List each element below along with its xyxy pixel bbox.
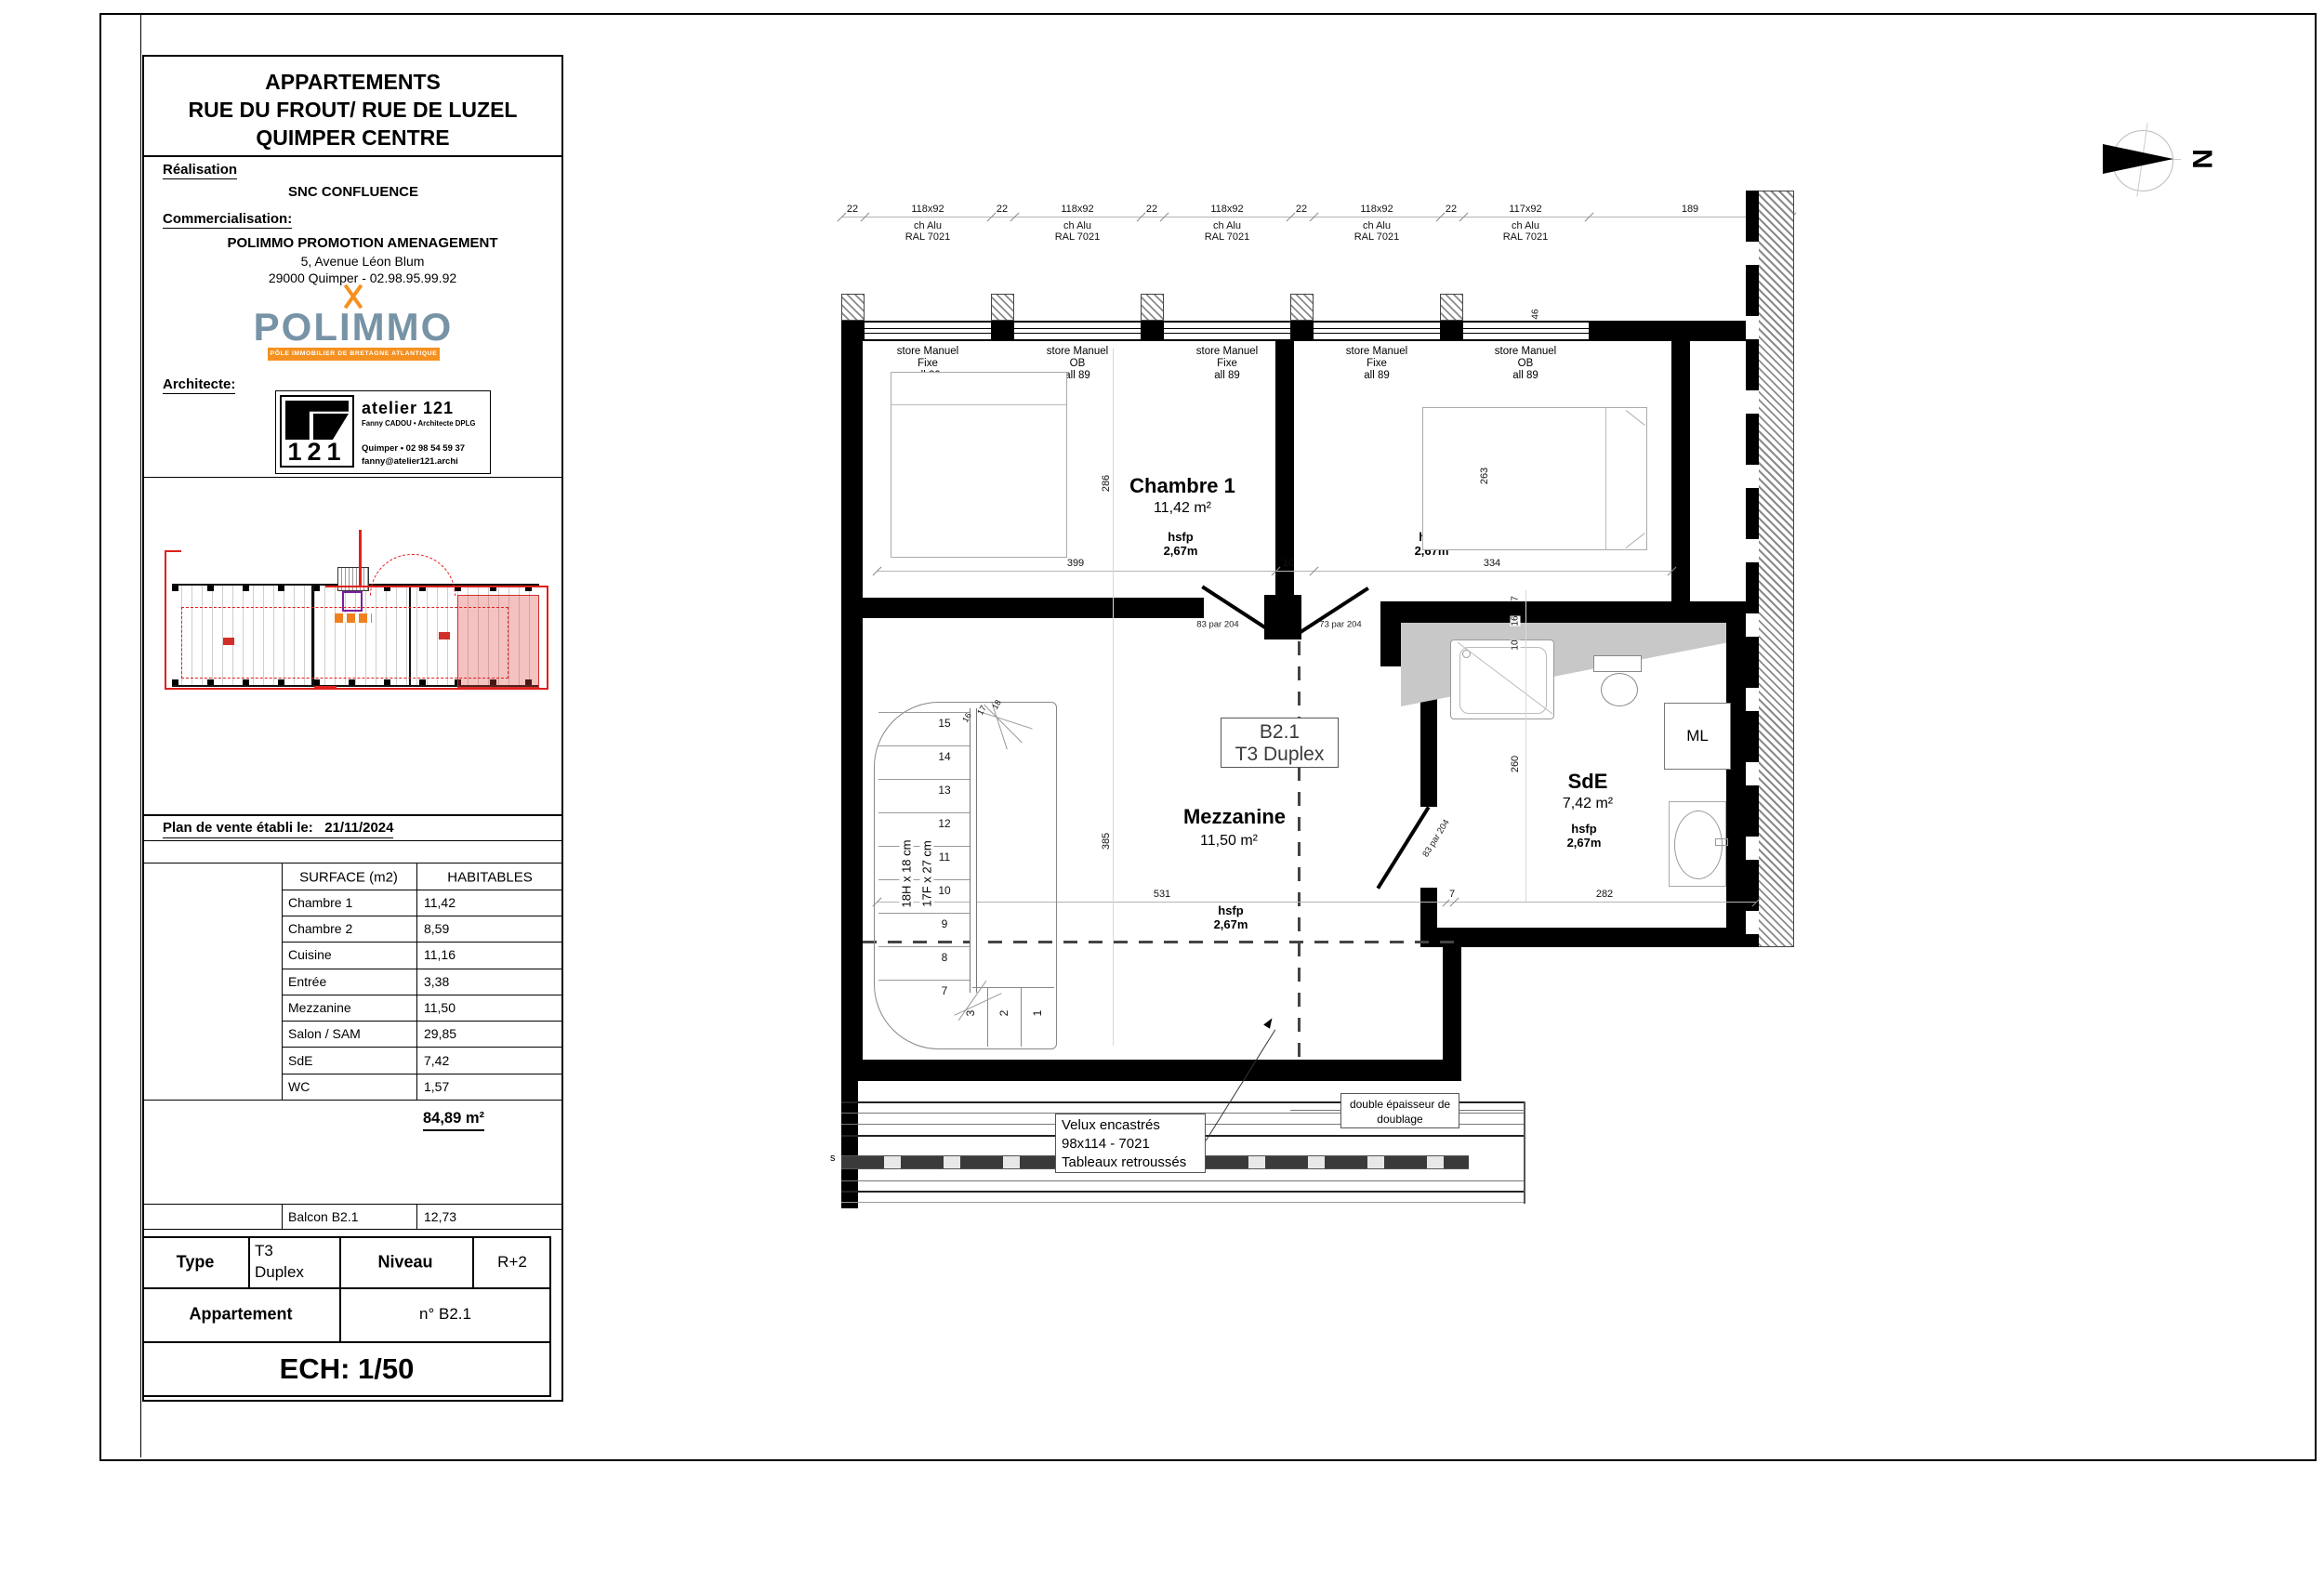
row-line-8 bbox=[142, 1100, 563, 1101]
stair-num: 9 bbox=[942, 917, 948, 930]
room-area-sde: 7,42 m² bbox=[1563, 796, 1613, 812]
niveau-value: R+2 bbox=[497, 1253, 527, 1272]
stair-num: 11 bbox=[939, 850, 950, 864]
table-row: Salon / SAM bbox=[288, 1026, 361, 1041]
store-mode: Fixe bbox=[897, 358, 958, 370]
commercialisation-address: 5, Avenue Léon Blum bbox=[301, 254, 425, 269]
architect-card: 121 atelier 121 Fanny CADOU • Architecte… bbox=[275, 390, 491, 474]
store-height: all 89 bbox=[1346, 370, 1407, 382]
door-size-right: 73 par 204 bbox=[1319, 620, 1361, 630]
window-dim: 117x92 bbox=[1509, 204, 1541, 215]
top-dim-line bbox=[841, 217, 1791, 218]
dim-7: 7 bbox=[1449, 889, 1455, 900]
key-plan-red-tag-1 bbox=[223, 638, 234, 645]
pier-hatch bbox=[1290, 294, 1314, 321]
velux-note-line3: Tableaux retroussés bbox=[1062, 1154, 1205, 1172]
window bbox=[1014, 321, 1141, 341]
door-size-left: 83 par 204 bbox=[1196, 620, 1238, 630]
plan-date-row: Plan de vente établi le: 21/11/2024 bbox=[163, 820, 393, 838]
dim-260: 260 bbox=[1510, 756, 1521, 772]
stair-num: 10 bbox=[938, 884, 950, 897]
window-frame: ch Alu bbox=[1063, 220, 1091, 231]
table-cell-value: 3,38 bbox=[424, 974, 449, 989]
store-height: all 89 bbox=[1495, 370, 1556, 382]
realisation-label: Réalisation bbox=[163, 162, 237, 179]
north-arrow: N bbox=[2092, 116, 2259, 204]
pier-hatch bbox=[991, 294, 1014, 321]
window-ral: RAL 7021 bbox=[1354, 231, 1400, 243]
insulation-inner-studs bbox=[1746, 191, 1759, 947]
polimmo-logo: POLIMMO PÔLE IMMOBILIER DE BRETAGNE ATLA… bbox=[260, 284, 446, 363]
table-row: Mezzanine bbox=[288, 1000, 351, 1015]
project-title-line3: QUIMPER CENTRE bbox=[142, 124, 563, 152]
key-plan-red-outline-top-stub bbox=[165, 550, 181, 552]
window bbox=[1314, 321, 1440, 341]
velux-note-line2: 98x114 - 7021 bbox=[1062, 1135, 1205, 1154]
unit-type: T3 Duplex bbox=[1221, 744, 1338, 765]
table-cell-value: 11,50 bbox=[424, 1000, 456, 1015]
unit-number: B2.1 bbox=[1221, 720, 1338, 744]
window-ral: RAL 7021 bbox=[1503, 231, 1549, 243]
table-row: Cuisine bbox=[288, 947, 332, 962]
doublage-note-line1: double épaisseur de bbox=[1341, 1097, 1459, 1112]
window-dim: 118x92 bbox=[911, 204, 944, 215]
dim-10: 10 bbox=[1283, 558, 1294, 569]
type-label: Type bbox=[177, 1253, 215, 1272]
niveau-label: Niveau bbox=[377, 1253, 432, 1272]
balcon-vline-2 bbox=[416, 1204, 417, 1229]
room-area-chambre1: 11,42 m² bbox=[1154, 500, 1211, 517]
table-cell-value: 7,42 bbox=[424, 1053, 449, 1068]
balcon-label: Balcon B2.1 bbox=[288, 1209, 359, 1224]
store-label: store ManuelFixeall 89 bbox=[1196, 346, 1258, 382]
table-row: WC bbox=[288, 1079, 310, 1094]
washbasin-tap bbox=[1715, 838, 1728, 846]
table-row: Chambre 1 bbox=[288, 895, 352, 910]
wall-segment bbox=[1141, 321, 1164, 341]
store-mode: OB bbox=[1495, 358, 1556, 370]
row-line-1 bbox=[282, 916, 563, 916]
north-letter: N bbox=[2185, 149, 2217, 169]
architect-name: Fanny CADOU • Architecte DPLG bbox=[362, 419, 475, 428]
dim-282: 282 bbox=[1596, 889, 1613, 900]
mezzanine-dashed-line-vertical bbox=[1298, 641, 1301, 1058]
id-hline-2 bbox=[142, 1341, 551, 1343]
plan-date-label: Plan de vente établi le: bbox=[163, 820, 313, 836]
stair-num-low: 2 bbox=[997, 1010, 1010, 1017]
pier-dim: 22 bbox=[997, 204, 1008, 215]
bed-chambre1 bbox=[891, 372, 1067, 558]
stair-tread-label: 17F x 27 cm bbox=[920, 840, 934, 907]
wall-chambre2-right bbox=[1671, 341, 1690, 601]
sheet-inner-left-line bbox=[140, 13, 141, 1457]
hsfp-label: hsfp bbox=[1567, 822, 1602, 836]
dim-v10: 10 bbox=[1511, 639, 1521, 650]
witness-v-1641 bbox=[1525, 590, 1526, 902]
commercialisation-name: POLIMMO PROMOTION AMENAGEMENT bbox=[227, 235, 497, 251]
hsfp-value: 2,67m bbox=[1214, 917, 1248, 931]
id-hline-1 bbox=[142, 1287, 551, 1289]
wall-left bbox=[841, 321, 863, 1081]
appartement-value: n° B2.1 bbox=[419, 1305, 471, 1324]
unit-tag-box: B2.1 T3 Duplex bbox=[1221, 718, 1339, 768]
store-type: store Manuel bbox=[1047, 346, 1108, 358]
row-line-6 bbox=[282, 1047, 563, 1048]
doublage-leader-right bbox=[1459, 1110, 1525, 1111]
store-type: store Manuel bbox=[1196, 346, 1258, 358]
wall-connector bbox=[1443, 947, 1461, 1081]
hsfp-chambre1: hsfp2,67m bbox=[1164, 530, 1198, 558]
hsfp-mezzanine: hsfp2,67m bbox=[1214, 903, 1248, 931]
row-line-5 bbox=[282, 1021, 563, 1022]
dim-399: 399 bbox=[1067, 558, 1084, 569]
habitables-col-header: HABITABLES bbox=[447, 870, 532, 886]
room-label-mezzanine: Mezzanine bbox=[1183, 805, 1286, 829]
project-title-box: APPARTEMENTS RUE DU FROUT/ RUE DE LUZEL … bbox=[142, 55, 563, 157]
key-plan-red-riser-line bbox=[359, 530, 362, 587]
pier-hatch bbox=[1141, 294, 1164, 321]
staircase: 15 14 13 12 11 10 9 8 7 3 2 1 16 17 18 bbox=[863, 697, 1063, 1055]
table-row: SdE bbox=[288, 1053, 312, 1068]
window-ral: RAL 7021 bbox=[1205, 231, 1250, 243]
plan-date-value: 21/11/2024 bbox=[324, 820, 393, 836]
store-mode: Fixe bbox=[1196, 358, 1258, 370]
row-line-0 bbox=[282, 890, 563, 890]
id-vline-2 bbox=[339, 1236, 341, 1341]
window-ral: RAL 7021 bbox=[1055, 231, 1101, 243]
table-vline-1 bbox=[282, 863, 283, 1100]
table-line-h3 bbox=[142, 863, 563, 864]
pier-hatch bbox=[841, 294, 865, 321]
doublage-leader-left bbox=[1290, 1110, 1340, 1111]
wall-segment bbox=[991, 321, 1014, 341]
id-vline-1 bbox=[248, 1236, 250, 1289]
row-line-2 bbox=[282, 942, 563, 943]
dim-v16: 16 bbox=[1511, 615, 1521, 626]
key-plan-red-tag-2 bbox=[439, 632, 450, 639]
row-line-4 bbox=[282, 995, 563, 995]
balcon-value: 12,73 bbox=[424, 1209, 456, 1224]
pier-dim: 22 bbox=[1146, 204, 1157, 215]
window-ral: RAL 7021 bbox=[905, 231, 951, 243]
dim-263: 263 bbox=[1479, 468, 1490, 484]
commercialisation-label: Commercialisation: bbox=[163, 211, 292, 229]
toilet bbox=[1593, 655, 1642, 672]
washing-machine-label: ML bbox=[1686, 727, 1709, 745]
window-frame: ch Alu bbox=[914, 220, 942, 231]
polimmo-tagline: PÔLE IMMOBILIER DE BRETAGNE ATLANTIQUE bbox=[271, 350, 438, 357]
store-type: store Manuel bbox=[1495, 346, 1556, 358]
balcon-line-top bbox=[142, 1204, 563, 1205]
table-row: Entrée bbox=[288, 974, 326, 989]
commercialisation-city: 29000 Quimper - 02.98.95.99.92 bbox=[269, 270, 456, 285]
doublage-note-line2: doublage bbox=[1341, 1112, 1459, 1127]
scale-label: ECH: 1/50 bbox=[280, 1352, 415, 1386]
stair-rail bbox=[970, 708, 977, 993]
atelier121-logo-text: 121 bbox=[287, 438, 346, 467]
doublage-dashed-band bbox=[1206, 1155, 1469, 1169]
table-line-h1 bbox=[142, 814, 563, 816]
key-plan-red-outline-left bbox=[165, 550, 166, 690]
stair-riser-label: 18H x 18 cm bbox=[900, 840, 914, 908]
architect-phone: Quimper • 02 98 54 59 37 bbox=[362, 443, 465, 454]
polimmo-wordmark: POLIMMO bbox=[254, 305, 454, 349]
window-frame: ch Alu bbox=[1363, 220, 1391, 231]
doublage-dashed-band bbox=[841, 1155, 1055, 1169]
key-plan-red-caption bbox=[314, 686, 337, 689]
dim-385: 385 bbox=[1101, 833, 1112, 850]
key-plan-red-outline-bottom bbox=[165, 688, 548, 690]
hsfp-value: 2,67m bbox=[1164, 544, 1198, 558]
surface-total: 84,89 m² bbox=[423, 1110, 484, 1131]
hsfp-label: hsfp bbox=[1214, 903, 1248, 917]
window-dim: 118x92 bbox=[1210, 204, 1243, 215]
wall-segment bbox=[1290, 321, 1314, 341]
velux-note-line1: Velux encastrés bbox=[1062, 1116, 1205, 1135]
stair-step-divider bbox=[987, 987, 988, 1047]
table-cell-value: 8,59 bbox=[424, 921, 449, 936]
surface-col-header: SURFACE (m2) bbox=[299, 870, 398, 886]
store-type: store Manuel bbox=[1346, 346, 1407, 358]
shower bbox=[1450, 639, 1554, 719]
wall-sde-right bbox=[1726, 601, 1746, 947]
wall-segment bbox=[1440, 321, 1463, 341]
pier-hatch bbox=[1440, 294, 1463, 321]
row-line-7 bbox=[282, 1074, 563, 1074]
balcon-vline-1 bbox=[282, 1204, 283, 1229]
table-row: Chambre 2 bbox=[288, 921, 352, 936]
type-value-line2: Duplex bbox=[255, 1263, 304, 1282]
dim-334: 334 bbox=[1484, 558, 1500, 569]
sheet: APPARTEMENTS RUE DU FROUT/ RUE DE LUZEL … bbox=[0, 0, 2324, 1582]
room-label-chambre1: Chambre 1 bbox=[1129, 474, 1235, 498]
key-plan-red-outline-right bbox=[547, 586, 548, 690]
architect-studio: atelier 121 bbox=[362, 399, 454, 418]
wall-sde-top bbox=[1380, 601, 1746, 623]
hsfp-label: hsfp bbox=[1164, 530, 1198, 544]
table-cell-value: 1,57 bbox=[424, 1079, 449, 1094]
end-dim: 189 bbox=[1682, 204, 1698, 215]
stair-landing-line bbox=[972, 987, 1054, 988]
window-dim: 118x92 bbox=[1360, 204, 1393, 215]
window-frame: ch Alu bbox=[1512, 220, 1539, 231]
hsfp-sde: hsfp2,67m bbox=[1567, 822, 1602, 850]
stair-num: 13 bbox=[938, 784, 950, 797]
stair-num: 8 bbox=[942, 951, 948, 964]
table-cell-value: 29,85 bbox=[424, 1026, 456, 1041]
stair-num: 12 bbox=[938, 817, 950, 830]
project-title-line2: RUE DU FROUT/ RUE DE LUZEL bbox=[142, 96, 563, 124]
doublage-note-box: double épaisseur de doublage bbox=[1340, 1093, 1459, 1128]
store-type: store Manuel bbox=[897, 346, 958, 358]
key-plan-red-dashed-arc bbox=[370, 554, 456, 596]
key-plan-stair-core bbox=[337, 567, 369, 591]
dim-v7: 7 bbox=[1511, 596, 1521, 601]
window bbox=[865, 321, 991, 341]
stair-step-divider bbox=[1021, 987, 1022, 1047]
stair-num: 7 bbox=[942, 984, 948, 997]
store-label: store ManuelFixeall 89 bbox=[1346, 346, 1407, 382]
wall-return-dim: 46 bbox=[1531, 309, 1541, 319]
polimmo-tagline-banner: PÔLE IMMOBILIER DE BRETAGNE ATLANTIQUE bbox=[268, 348, 440, 361]
atelier121-logo: 121 bbox=[280, 395, 354, 468]
window bbox=[1463, 321, 1589, 341]
architect-email: fanny@atelier121.archi bbox=[362, 456, 458, 467]
table-line-h2 bbox=[142, 840, 563, 841]
room-area-mezzanine: 11,50 m² bbox=[1200, 833, 1258, 850]
table-cell-value: 11,16 bbox=[424, 947, 456, 962]
toilet-bowl bbox=[1601, 673, 1638, 706]
wall-mezz-bottom bbox=[841, 1060, 1461, 1081]
store-mode: OB bbox=[1047, 358, 1108, 370]
stair-num: 14 bbox=[938, 750, 950, 763]
project-title-line1: APPARTEMENTS bbox=[142, 68, 563, 96]
section-letter: s bbox=[830, 1153, 836, 1164]
pier-dim: 22 bbox=[1446, 204, 1457, 215]
hsfp-value: 2,67m bbox=[1567, 836, 1602, 850]
appartement-label: Appartement bbox=[189, 1305, 292, 1325]
balcon-line-bottom bbox=[142, 1229, 563, 1230]
bed-chambre2 bbox=[1422, 407, 1647, 550]
window-frame: ch Alu bbox=[1213, 220, 1241, 231]
stair-num-low: 1 bbox=[1031, 1010, 1044, 1017]
store-mode: Fixe bbox=[1346, 358, 1407, 370]
wall-chambre-bottom bbox=[841, 598, 1204, 618]
row-line-3 bbox=[282, 969, 563, 969]
window-dim: 118x92 bbox=[1061, 204, 1093, 215]
stair-num: 15 bbox=[938, 717, 950, 730]
store-label: store ManuelOBall 89 bbox=[1495, 346, 1556, 382]
witness-v-1197 bbox=[1113, 349, 1114, 1046]
wall-segment bbox=[1589, 321, 1746, 341]
velux-note-box: Velux encastrés 98x114 - 7021 Tableaux r… bbox=[1055, 1114, 1206, 1173]
pier-dim: 22 bbox=[847, 204, 858, 215]
dim-531: 531 bbox=[1154, 889, 1170, 900]
type-value-line1: T3 bbox=[255, 1242, 273, 1260]
id-vline-3 bbox=[472, 1236, 474, 1289]
key-plan bbox=[158, 509, 563, 732]
realisation-value: SNC CONFLUENCE bbox=[288, 184, 418, 200]
panel-divider bbox=[142, 477, 563, 478]
window bbox=[1164, 321, 1290, 341]
room-label-sde: SdE bbox=[1568, 770, 1608, 794]
north-triangle-icon bbox=[2103, 144, 2173, 174]
table-cell-value: 11,42 bbox=[424, 895, 456, 910]
pier-dim: 22 bbox=[1296, 204, 1307, 215]
store-height: all 89 bbox=[1196, 370, 1258, 382]
wall-sde-bottom bbox=[1420, 928, 1746, 947]
stair-num-low: 3 bbox=[964, 1010, 977, 1017]
table-vline-2 bbox=[416, 863, 417, 1100]
dim-286: 286 bbox=[1101, 475, 1112, 492]
architect-label: Architecte: bbox=[163, 376, 235, 394]
